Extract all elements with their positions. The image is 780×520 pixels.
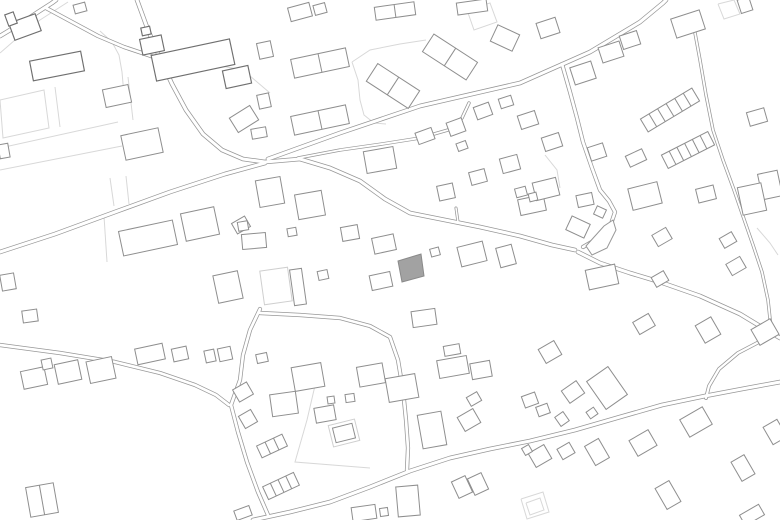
building: [456, 141, 468, 152]
building: [287, 227, 297, 236]
building: [102, 84, 131, 107]
building: [141, 26, 151, 36]
building: [430, 247, 441, 257]
building: [22, 309, 39, 323]
building: [363, 147, 396, 174]
building: [746, 108, 767, 126]
parcel-line: [110, 178, 114, 206]
building: [739, 504, 764, 520]
building: [585, 264, 619, 290]
building: [719, 232, 737, 249]
building: [317, 270, 329, 281]
parcel-line: [126, 176, 129, 204]
building: [437, 183, 456, 201]
building: [521, 392, 538, 408]
building: [213, 271, 243, 304]
building: [696, 185, 717, 203]
parcel-line: [718, 0, 740, 19]
building: [217, 346, 232, 361]
building: [633, 313, 656, 334]
building: [411, 308, 437, 327]
building: [490, 25, 519, 51]
building: [291, 363, 325, 392]
building: [576, 192, 594, 207]
building: [41, 358, 53, 370]
building: [680, 407, 713, 437]
building: [295, 190, 326, 219]
building: [257, 93, 272, 109]
building: [222, 65, 251, 88]
building: [731, 455, 755, 482]
parcel-line: [0, 146, 122, 170]
building: [515, 186, 528, 198]
building: [234, 506, 252, 520]
parcel-line: [757, 228, 778, 255]
building: [457, 241, 487, 267]
building: [171, 346, 188, 362]
building: [238, 409, 257, 428]
building: [586, 407, 598, 419]
building: [555, 412, 570, 427]
parcel-line: [295, 377, 370, 468]
building: [496, 244, 517, 267]
building: [446, 118, 466, 137]
parcel-line: [104, 216, 107, 262]
rowhouse-block: [257, 434, 288, 458]
building: [437, 356, 470, 379]
building: [5, 12, 18, 26]
building: [372, 234, 397, 254]
building: [498, 95, 513, 109]
building: [241, 232, 266, 249]
road-surface: [578, 252, 780, 338]
parcel-line: [0, 90, 49, 138]
building: [528, 445, 552, 468]
building: [536, 17, 560, 38]
building: [415, 127, 435, 144]
building: [570, 61, 596, 85]
building: [469, 169, 488, 186]
building: [655, 481, 681, 510]
building: [73, 2, 87, 14]
building: [356, 363, 385, 387]
parcel-line: [521, 492, 549, 519]
building: [260, 267, 292, 305]
building: [456, 0, 487, 15]
building: [538, 341, 562, 364]
building: [499, 154, 520, 173]
building: [255, 177, 284, 208]
building: [0, 273, 16, 291]
building: [628, 182, 662, 211]
building: [86, 357, 116, 384]
building: [417, 411, 447, 449]
building: [541, 133, 562, 152]
building: [30, 51, 85, 81]
building: [345, 393, 355, 402]
building: [256, 41, 273, 60]
parcel-line: [526, 498, 544, 515]
map-canvas: [0, 0, 780, 520]
building: [237, 221, 248, 232]
parcel-line: [55, 87, 60, 127]
building: [351, 504, 377, 520]
building: [233, 382, 254, 402]
building: [314, 405, 336, 423]
building: [340, 225, 359, 242]
building: [313, 3, 327, 16]
building: [763, 419, 780, 444]
building: [557, 442, 575, 459]
building: [369, 271, 393, 290]
building: [737, 0, 753, 14]
building: [204, 349, 216, 363]
building: [385, 374, 419, 403]
building: [466, 392, 481, 407]
building: [737, 183, 766, 215]
parcel-line: [352, 40, 426, 62]
building: [119, 220, 178, 256]
highlighted-building: [398, 254, 424, 282]
building: [585, 438, 610, 465]
building: [726, 256, 746, 275]
building: [270, 391, 299, 416]
building: [443, 344, 460, 357]
building: [561, 381, 584, 404]
building: [652, 227, 672, 246]
building: [671, 10, 706, 38]
building: [594, 206, 607, 218]
building: [256, 352, 269, 363]
building: [587, 143, 607, 161]
road-casing: [268, 0, 666, 159]
building: [470, 360, 492, 379]
building: [180, 207, 219, 241]
building: [121, 128, 163, 160]
building: [566, 216, 590, 238]
building: [54, 360, 82, 385]
traffic-island: [586, 220, 616, 255]
building: [695, 317, 721, 343]
building: [536, 403, 551, 417]
building: [379, 507, 388, 516]
building: [0, 143, 10, 159]
building: [135, 343, 166, 364]
site-plan-map: [0, 0, 780, 520]
building: [629, 430, 657, 457]
building: [251, 127, 268, 139]
building: [288, 2, 313, 21]
building: [327, 396, 335, 404]
building: [396, 485, 421, 517]
building: [140, 35, 165, 55]
building: [457, 409, 481, 432]
building: [517, 111, 538, 130]
building: [625, 149, 646, 167]
building: [473, 102, 492, 120]
building: [528, 192, 538, 202]
building: [587, 367, 628, 410]
